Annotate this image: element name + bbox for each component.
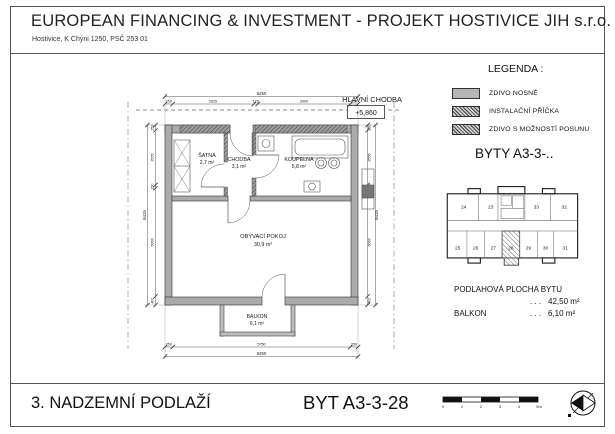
dim: 250 [351, 343, 357, 347]
dim: 2555 [151, 153, 155, 161]
unit-label: BYT A3-3-28 [303, 392, 409, 414]
legend-item: ZDIVO S MOŽNOSTÍ POSUNU [452, 120, 615, 138]
svg-text:31: 31 [563, 246, 569, 252]
legend-label: ZDIVO S MOŽNOSTÍ POSUNU [489, 126, 590, 133]
dim-top [163, 93, 360, 125]
dim: 250 [151, 125, 155, 131]
dim: 3000 [300, 100, 308, 104]
movable-wall-swatch-icon [452, 124, 480, 135]
svg-text:32: 32 [562, 204, 568, 210]
floor-plan: HLAVNÍ CHODBA +5,860 6250 250 2625 125 3… [116, 57, 446, 389]
dim: 5060 [151, 238, 155, 246]
svg-text:4: 4 [518, 404, 521, 409]
floor-plan-drawing: HLAVNÍ CHODBA +5,860 6250 250 2625 125 3… [116, 57, 446, 384]
partition-hatch-swatch-icon [452, 106, 480, 117]
scale-bar-drawing: 0 1 2 3 4 5m [441, 395, 546, 413]
svg-text:24: 24 [461, 204, 467, 210]
svg-text:0: 0 [442, 404, 445, 409]
svg-text:26: 26 [473, 246, 479, 252]
balcony-area-value: 6,10 m² [548, 308, 575, 320]
dim: 2555 [367, 153, 371, 161]
legend-item: INSTALAČNÍ PŘÍČKA [452, 102, 615, 120]
room-chodba: CHODBA [227, 157, 250, 163]
load-bearing-walls [165, 125, 358, 305]
scale-tick-labels: 0 1 2 3 4 5m [442, 404, 543, 409]
dim-left [145, 123, 165, 307]
area-label: BALKON [454, 308, 530, 320]
page: { "header": { "title": "EUROPEAN FINANCI… [0, 0, 615, 434]
floor-area-title: PODLAHOVÁ PLOCHA BYTU [454, 284, 562, 296]
svg-text:28: 28 [508, 246, 514, 252]
legend-title: LEGENDA : [488, 63, 543, 75]
svg-text:6,1 m²: 6,1 m² [250, 321, 265, 327]
project-title: EUROPEAN FINANCING & INVESTMENT - PROJEK… [31, 12, 611, 31]
room-satna: ŠATNA [198, 152, 216, 159]
dots: . . . [530, 296, 548, 308]
dryer [329, 158, 340, 169]
washer [316, 158, 327, 169]
area-row: BALKON . . . 6,10 m² [454, 308, 604, 320]
solid-wall-swatch-icon [452, 88, 480, 99]
svg-text:27: 27 [491, 246, 497, 252]
dim-bottom-total: 6250 [257, 351, 267, 356]
dim-top-total: 6250 [257, 91, 267, 96]
svg-text:5m: 5m [536, 404, 542, 409]
movable-wall-hatch [180, 125, 347, 133]
washbasin [258, 136, 274, 151]
dim-right-total: 8415 [374, 210, 379, 220]
floor-area-value: 42,50 m² [548, 296, 580, 308]
legend: ZDIVO NOSNÉ INSTALAČNÍ PŘÍČKA ZDIVO S MO… [452, 84, 615, 138]
dim: 5060 [367, 238, 371, 246]
dim: 400 [367, 298, 371, 304]
north-arrow-icon [561, 386, 601, 429]
toilet [304, 181, 320, 192]
dim: 250 [367, 125, 371, 131]
title-block-footer: 3. NADZEMNÍ PODLAŽÍ BYT A3-3-28 0 1 2 3 … [11, 383, 604, 426]
dim: 250 [166, 100, 172, 104]
legend-label: ZDIVO NOSNÉ [489, 90, 538, 97]
svg-text:23: 23 [488, 204, 494, 210]
dim: 400 [151, 298, 155, 304]
svg-text:25: 25 [455, 246, 461, 252]
dim: 250 [166, 343, 172, 347]
area-title-row: PODLAHOVÁ PLOCHA BYTU [454, 284, 604, 296]
svg-text:2: 2 [480, 404, 483, 409]
key-plan: 24 23 33 32 25 26 27 28 29 30 31 [439, 185, 589, 280]
svg-text:30,9 m²: 30,9 m² [254, 242, 272, 248]
dim: 2625 [209, 100, 217, 104]
dim-left-total: 8415 [142, 210, 147, 220]
highlighted-unit-28 [502, 231, 520, 258]
title-block-header: EUROPEAN FINANCING & INVESTMENT - PROJEK… [11, 7, 604, 54]
svg-text:2,7 m²: 2,7 m² [200, 160, 215, 166]
dim: 250 [351, 100, 357, 104]
dim: 5750 [257, 343, 265, 347]
dim: 125 [253, 100, 259, 104]
scale-bar: 0 1 2 3 4 5m [441, 395, 546, 418]
dots: . . . [530, 308, 548, 320]
svg-text:5,8 m²: 5,8 m² [292, 164, 307, 170]
area-row: . . . 42,50 m² [454, 296, 604, 308]
area-table: PODLAHOVÁ PLOCHA BYTU . . . 42,50 m² BAL… [454, 284, 604, 320]
legend-item: ZDIVO NOSNÉ [452, 84, 615, 102]
area-label [454, 296, 530, 308]
room-balkon: BALKON [247, 314, 268, 320]
corridor-elevation: +5,860 [355, 110, 377, 117]
drawing-sheet: EUROPEAN FINANCING & INVESTMENT - PROJEK… [10, 6, 605, 427]
svg-text:33: 33 [534, 204, 540, 210]
dim: 150 [151, 184, 155, 190]
svg-text:3,1 m²: 3,1 m² [232, 164, 247, 170]
project-address: Hostivice, K Chýni 1250, PSČ 253 01 [32, 36, 148, 43]
svg-text:30: 30 [543, 246, 549, 252]
key-plan-drawing: 24 23 33 32 25 26 27 28 29 30 31 [439, 185, 589, 275]
highlighted-unit-balcony [504, 258, 518, 265]
unit-group-title: BYTY A3-3-.. [475, 146, 554, 161]
legend-label: INSTALAČNÍ PŘÍČKA [489, 108, 559, 115]
room-koupelna: KOUPELNA [284, 157, 314, 163]
room-obyvaci-pokoj: OBÝVACÍ POKOJ [240, 233, 286, 240]
floor-label: 3. NADZEMNÍ PODLAŽÍ [31, 394, 211, 413]
svg-text:1: 1 [461, 404, 464, 409]
svg-text:3: 3 [499, 404, 502, 409]
svg-text:29: 29 [526, 246, 532, 252]
